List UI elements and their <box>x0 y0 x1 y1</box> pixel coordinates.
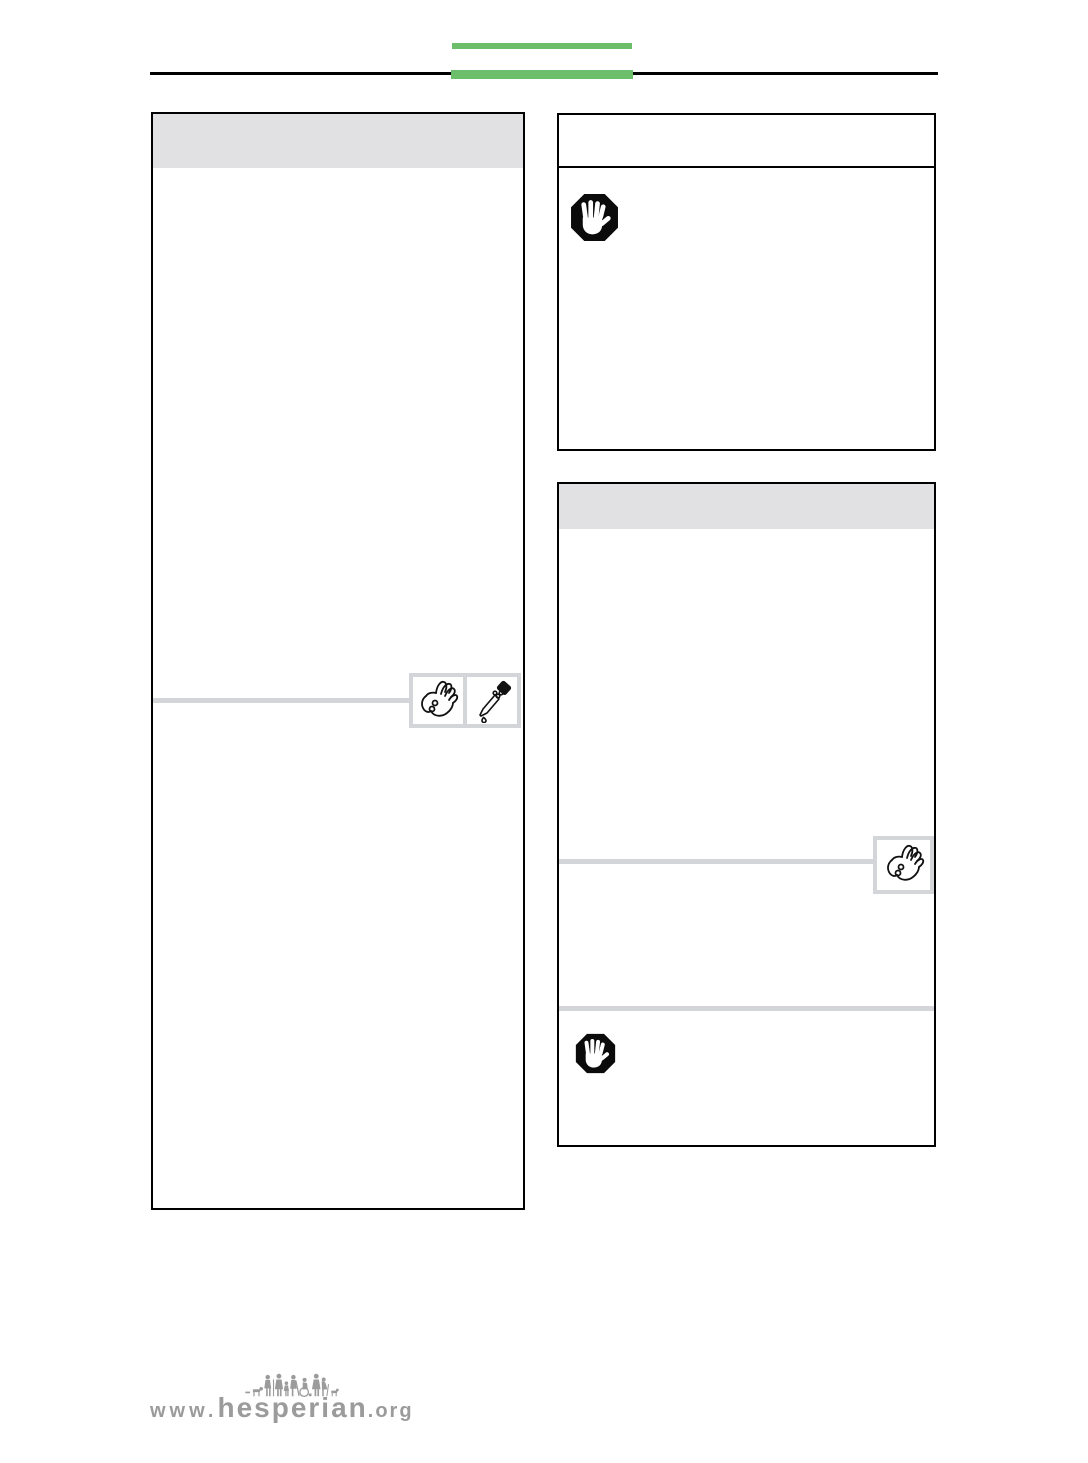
hand-with-pills-icon <box>877 840 930 890</box>
hand-with-pills-icon <box>413 677 463 724</box>
right-top-panel-header-band <box>559 115 934 168</box>
stop-hand-icon <box>570 193 619 242</box>
green-accent-bar-top <box>452 43 632 49</box>
hesperian-logo: www.hesperian.org <box>150 1372 410 1424</box>
right-medicine-panel <box>557 482 936 1147</box>
logo-www-prefix: www. <box>150 1400 217 1423</box>
right-bottom-panel-header-band <box>559 484 934 529</box>
logo-tld: .org <box>368 1400 414 1423</box>
right-warning-panel <box>557 113 936 451</box>
medicine-form-icon-group <box>409 673 521 728</box>
green-accent-bar-bottom <box>451 70 633 79</box>
document-page: www.hesperian.org <box>0 0 1088 1463</box>
medicine-form-icon-group <box>873 836 934 894</box>
left-medicine-panel <box>151 112 525 1210</box>
left-panel-header-band <box>153 114 523 168</box>
dropper-icon <box>467 677 517 724</box>
right-panel-divider-1 <box>559 859 876 864</box>
logo-site-name: hesperian <box>217 1392 367 1424</box>
logo-text: www.hesperian.org <box>150 1392 414 1424</box>
right-panel-divider-2 <box>559 1006 934 1011</box>
left-panel-divider <box>153 698 411 703</box>
stop-hand-icon <box>575 1033 616 1074</box>
